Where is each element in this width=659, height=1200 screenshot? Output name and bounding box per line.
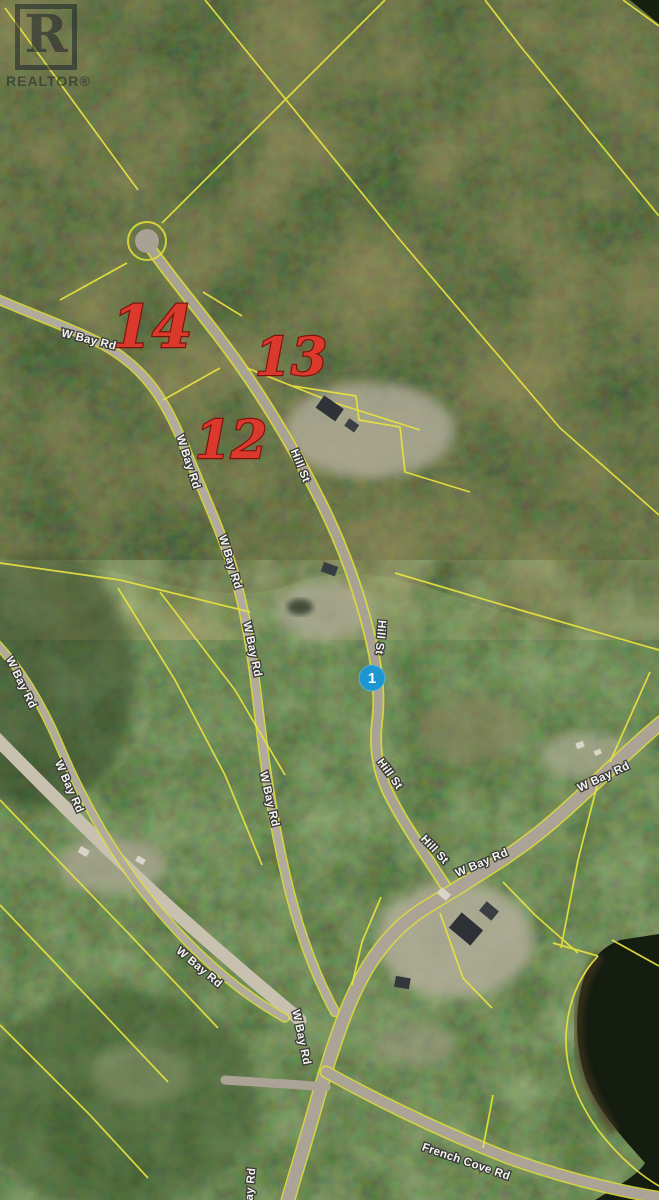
map-canvas[interactable]: 141312 W Bay RdW Bay RdW Bay RdW Bay RdW… xyxy=(0,0,659,1200)
realtor-logo-text: REALTOR® xyxy=(6,73,91,89)
realtor-logo-letter: R xyxy=(24,9,67,61)
realtor-watermark: R REALTOR® xyxy=(6,4,91,89)
lot-number: 13 xyxy=(255,327,327,388)
satellite-map: 141312 W Bay RdW Bay RdW Bay RdW Bay RdW… xyxy=(0,0,659,1200)
lot-number: 14 xyxy=(112,293,193,361)
lot-number: 12 xyxy=(195,410,267,471)
realtor-logo-r-block: R xyxy=(15,4,77,70)
location-marker[interactable]: 1 xyxy=(359,665,385,691)
marker-label: 1 xyxy=(368,670,376,687)
